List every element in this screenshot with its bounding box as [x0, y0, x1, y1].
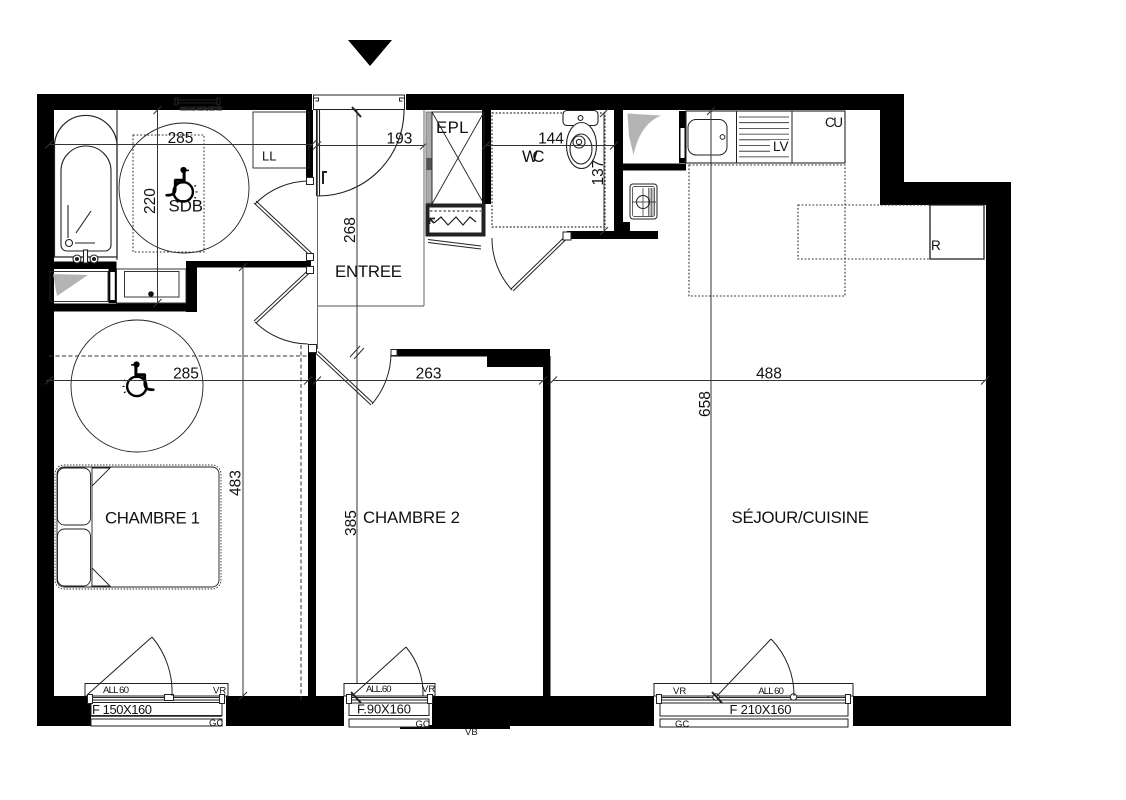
svg-text:R: R: [931, 238, 941, 253]
svg-text:F 210X160: F 210X160: [730, 702, 792, 717]
svg-text:GC: GC: [416, 719, 430, 730]
svg-text:137: 137: [590, 160, 607, 186]
svg-text:F 150X160: F 150X160: [92, 702, 152, 717]
svg-text:488: 488: [756, 366, 782, 383]
svg-text:144: 144: [538, 131, 564, 148]
svg-text:LL: LL: [262, 149, 276, 164]
svg-text:658: 658: [697, 391, 714, 417]
svg-text:285: 285: [173, 366, 199, 383]
svg-text:ALL 60: ALL 60: [103, 685, 129, 696]
svg-text:CU: CU: [825, 115, 843, 130]
svg-text:385: 385: [343, 510, 360, 536]
svg-text:VR: VR: [673, 686, 686, 697]
svg-text:SECHE SERVIETTE: SECHE SERVIETTE: [180, 106, 222, 111]
svg-text:SDB: SDB: [169, 197, 204, 216]
svg-text:ALL.60: ALL.60: [366, 684, 392, 695]
svg-text:CHAMBRE 2: CHAMBRE 2: [363, 508, 460, 527]
svg-text:SÉJOUR/CUISINE: SÉJOUR/CUISINE: [732, 508, 870, 527]
svg-text:285: 285: [168, 130, 194, 147]
svg-text:CHAMBRE 1: CHAMBRE 1: [105, 509, 200, 528]
svg-text:VR: VR: [422, 684, 435, 695]
svg-text:ALL 60: ALL 60: [758, 686, 784, 697]
svg-text:ENTREE: ENTREE: [335, 262, 402, 281]
svg-text:GC: GC: [675, 719, 689, 730]
svg-text:220: 220: [142, 188, 159, 214]
svg-text:GC: GC: [209, 718, 223, 729]
svg-text:F.90X160: F.90X160: [357, 702, 411, 717]
svg-text:263: 263: [416, 365, 442, 382]
svg-text:268: 268: [342, 217, 359, 243]
svg-text:VR: VR: [213, 686, 226, 697]
svg-text:483: 483: [228, 470, 245, 496]
svg-text:193: 193: [386, 131, 412, 148]
svg-text:EPL: EPL: [436, 118, 469, 137]
svg-text:LV: LV: [773, 139, 789, 154]
svg-text:WC: WC: [522, 147, 545, 166]
svg-text:VB: VB: [465, 727, 478, 738]
